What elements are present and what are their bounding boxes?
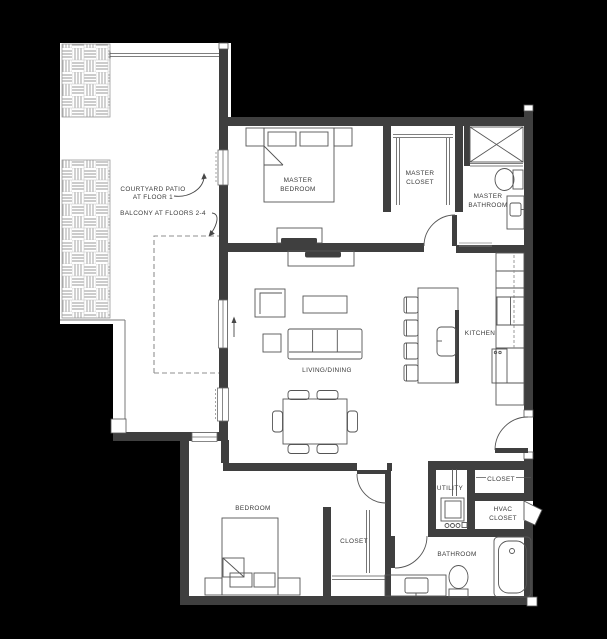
patio-hatch-upper [62, 44, 110, 117]
unit-upper-floor [222, 117, 533, 475]
patio-hatch-lower [62, 160, 110, 318]
label-bathroom: BATHROOM [437, 551, 476, 558]
entry-jamb-cap-bottom [524, 452, 533, 459]
wall-left [219, 45, 228, 440]
corner-cap-bottom-right [527, 597, 537, 606]
wall-bedroom-west [180, 433, 189, 605]
wall-right-upper [524, 110, 533, 416]
wall-hvac-north [475, 493, 533, 501]
label-master-closet: MASTER [406, 170, 435, 177]
wall-bcloset-left [323, 507, 331, 597]
wall-living-jog [221, 440, 229, 463]
living-window [219, 300, 228, 348]
label-bedroom-closet: CLOSET [340, 538, 368, 545]
balcony-door-window [216, 388, 229, 421]
label-master-bathroom-2: BATHROOM [468, 202, 507, 209]
label-hvac-closet: HVAC [494, 506, 513, 513]
wall-utility-divider [467, 461, 475, 537]
wall-utility-north [428, 461, 533, 470]
living-tv [305, 252, 341, 258]
entry-jamb-cap-top [524, 410, 533, 417]
label-master-closet-2: CLOSET [406, 179, 434, 186]
label-utility: UTILITY [437, 485, 464, 492]
wall-corridor-west [385, 471, 391, 597]
master-tv [281, 238, 317, 244]
label-kitchen: KITCHEN [465, 330, 496, 337]
label-bedroom: BEDROOM [235, 505, 270, 512]
balcony-wall-cap [111, 419, 126, 433]
wall-utility-west [428, 461, 436, 537]
label-master-bedroom: MASTER [284, 177, 313, 184]
label-hvac-closet-2: CLOSET [489, 515, 517, 522]
wall-shower-west [464, 126, 470, 166]
bedroom-window [192, 433, 217, 442]
floor-plan-drawing: COURTYARD PATIO AT FLOOR 1 BALCONY AT FL… [0, 0, 607, 639]
wall-mcloset-right [455, 126, 463, 212]
patio-door-window [216, 150, 228, 185]
label-courtyard-patio: COURTYARD PATIO [120, 186, 185, 193]
label-master-bedroom-2: BEDROOM [280, 186, 315, 193]
wall-bottom [180, 596, 533, 605]
floor-plan-page: COURTYARD PATIO AT FLOOR 1 BALCONY AT FL… [0, 0, 607, 639]
wall-top [219, 117, 533, 126]
left-wall-cap [219, 43, 228, 49]
wall-living-south-stub [387, 463, 392, 471]
wall-living-south [223, 463, 357, 471]
balcony-floor [113, 318, 231, 441]
label-living-dining: LIVING/DINING [302, 367, 352, 374]
wall-bathroom-north [428, 529, 533, 537]
label-master-bathroom: MASTER [474, 193, 503, 200]
label-balcony: BALCONY AT FLOORS 2-4 [120, 210, 206, 217]
right-wall-cap [524, 105, 533, 111]
label-courtyard-patio-2: AT FLOOR 1 [133, 194, 173, 201]
wall-mcloset-left [383, 126, 391, 212]
label-entry-closet: CLOSET [487, 476, 515, 483]
